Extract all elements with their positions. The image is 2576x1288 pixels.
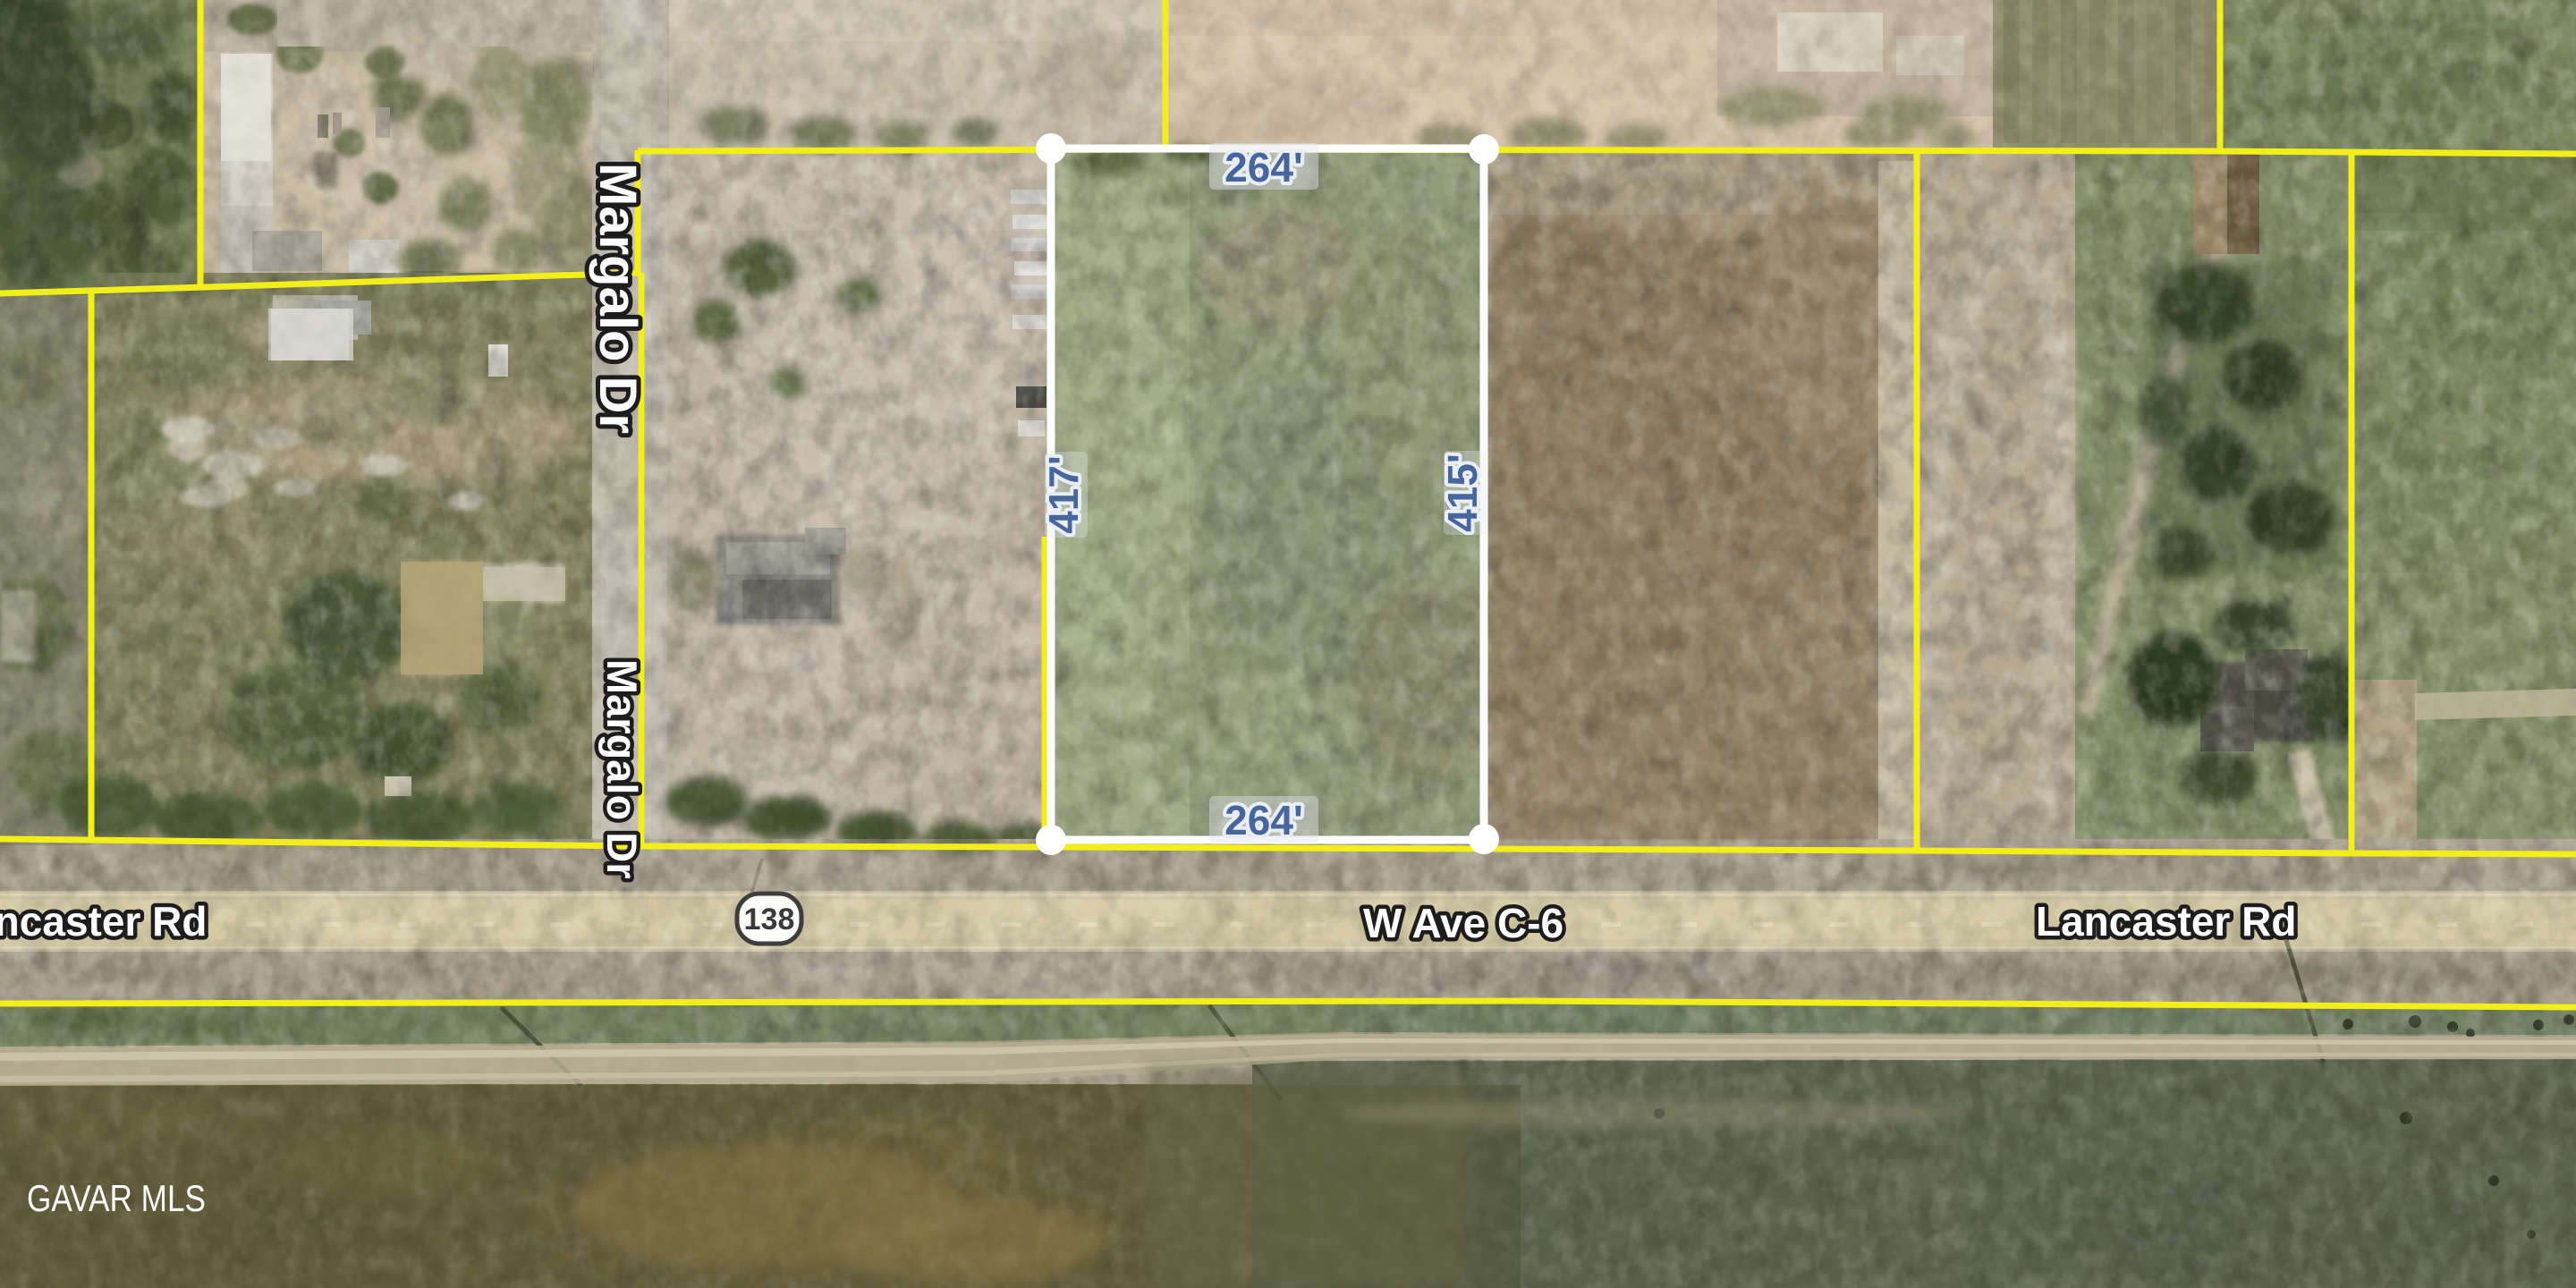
- svg-text:264': 264': [1224, 144, 1303, 191]
- svg-text:Margalo Dr: Margalo Dr: [598, 659, 646, 879]
- svg-text:W Ave C-6: W Ave C-6: [1363, 900, 1563, 946]
- svg-text:Lancaster Rd: Lancaster Rd: [0, 898, 207, 945]
- svg-text:GAVAR MLS: GAVAR MLS: [27, 1177, 206, 1219]
- svg-text:417': 417': [1040, 455, 1087, 534]
- svg-text:Lancaster Rd: Lancaster Rd: [2036, 898, 2296, 945]
- svg-text:415': 415': [1439, 453, 1486, 532]
- svg-text:264': 264': [1224, 797, 1303, 843]
- svg-text:138: 138: [744, 902, 795, 936]
- svg-text:Margalo Dr: Margalo Dr: [589, 163, 647, 434]
